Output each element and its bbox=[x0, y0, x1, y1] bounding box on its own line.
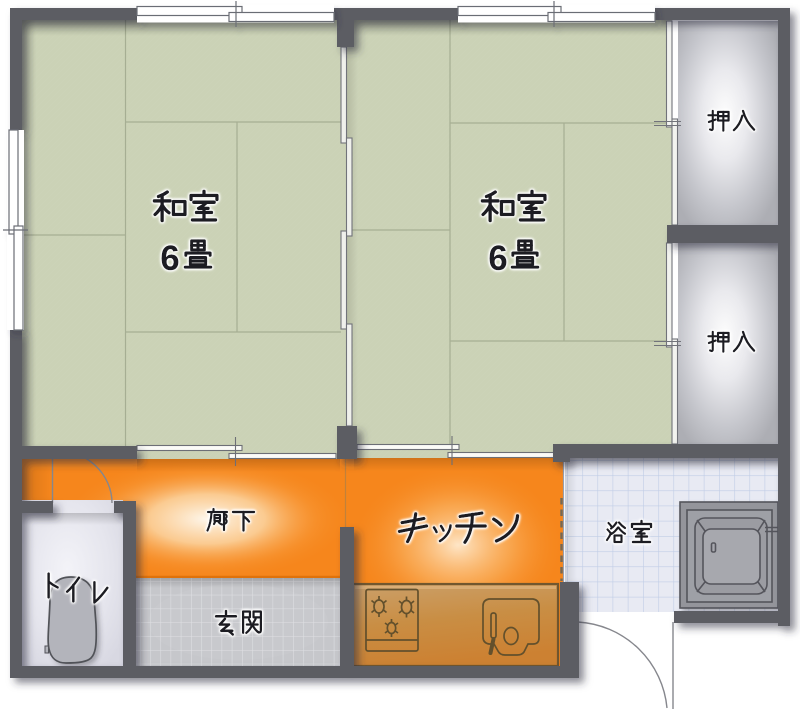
svg-text:6: 6 bbox=[160, 239, 179, 278]
svg-text:6: 6 bbox=[488, 239, 507, 278]
